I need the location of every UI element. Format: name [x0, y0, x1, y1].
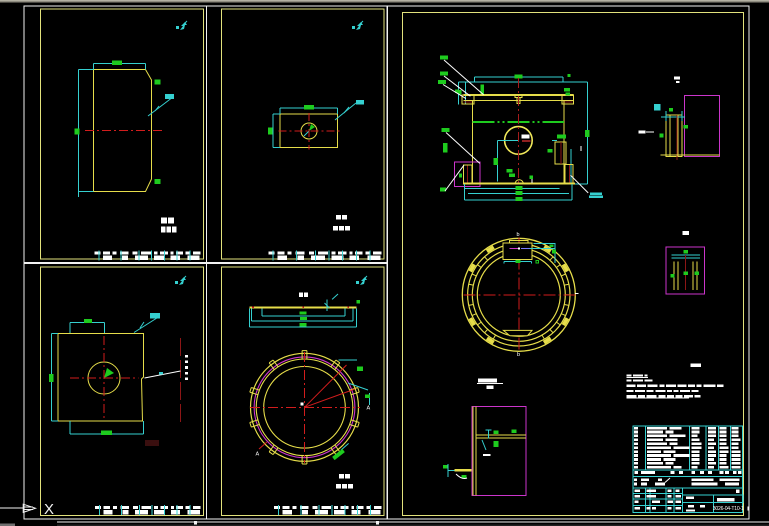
svg-text:b: b [517, 232, 520, 238]
svg-text:A: A [256, 452, 260, 458]
svg-text:3026-04-T10-1: 3026-04-T10-1 [713, 506, 744, 512]
svg-text:b: b [517, 352, 520, 358]
svg-text:A: A [367, 406, 371, 412]
svg-text:X: X [44, 501, 54, 518]
